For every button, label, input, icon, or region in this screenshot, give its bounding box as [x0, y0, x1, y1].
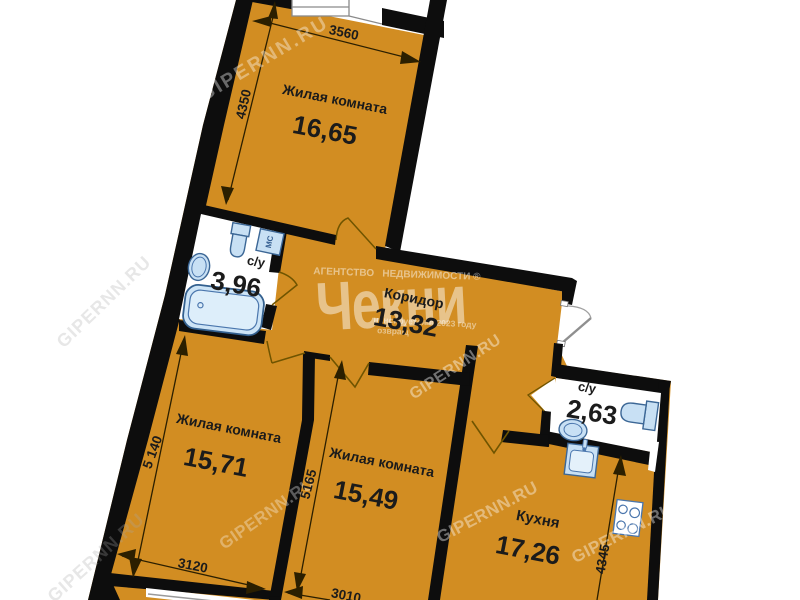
- svg-text:с/у: с/у: [246, 253, 267, 271]
- svg-text:с/у: с/у: [577, 379, 598, 397]
